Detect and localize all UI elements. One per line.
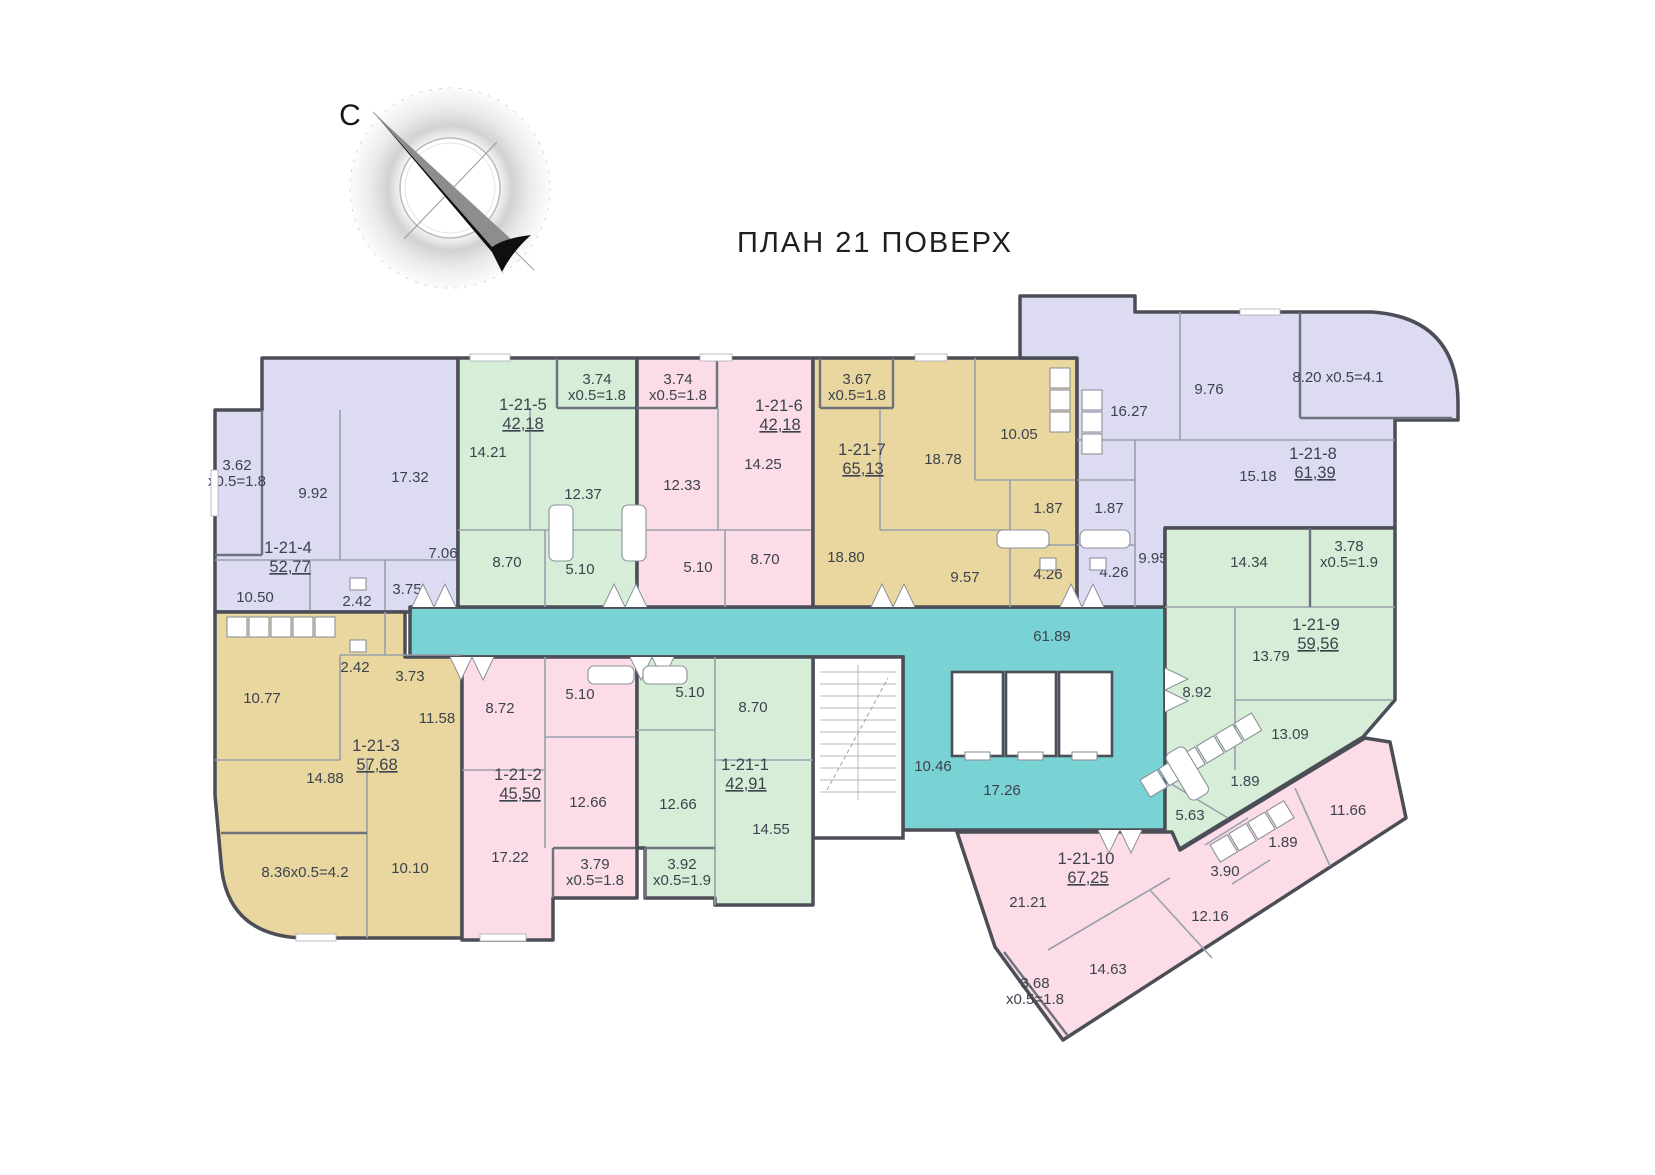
room-area-label: 9.92 <box>298 485 327 502</box>
room-area-label: 13.79 <box>1252 648 1290 665</box>
room-area-label: 9.76 <box>1194 381 1223 398</box>
room-area-label: 3.92 <box>667 856 696 873</box>
kitchen-counter-icon <box>1082 434 1102 454</box>
room-area-label: 9.95 <box>1138 550 1167 567</box>
room-area-label: 3.90 <box>1210 863 1239 880</box>
apartment-id: 1-21-9 <box>1292 616 1340 634</box>
room-area-label: 18.80 <box>827 549 865 566</box>
stove-icon <box>1082 412 1102 432</box>
room-area-label: 14.34 <box>1230 554 1268 571</box>
elevator-shaft-2 <box>1006 672 1056 756</box>
room-area-label: 14.63 <box>1089 961 1127 978</box>
compass-rose-icon: С <box>339 88 550 288</box>
room-area-label: x0.5=1.8 <box>1006 991 1064 1008</box>
window-icon <box>470 354 510 361</box>
room-area-label: 17.32 <box>391 469 429 486</box>
room-area-label: 8.70 <box>738 699 767 716</box>
stove-icon <box>1050 390 1070 410</box>
bathtub-icon <box>622 505 646 561</box>
apartment-id: 1-21-2 <box>494 766 542 784</box>
apartment-1-21-7: 3.67 x0.5=1.8 1-21-7 65,13 18.80 18.78 9… <box>813 358 1077 607</box>
apartment-id: 1-21-5 <box>499 396 547 414</box>
kitchen-counter-icon <box>293 617 313 637</box>
room-area-label: 8.20 x0.5=4.1 <box>1292 369 1383 386</box>
room-area-label: 14.55 <box>752 821 790 838</box>
apartment-1-21-1: 5.10 8.70 12.66 14.55 3.92 x0.5=1.9 1-21… <box>637 657 813 905</box>
room-area-label: 11.66 <box>1330 802 1366 819</box>
room-area-label: 12.16 <box>1191 908 1229 925</box>
room-area-label: 12.37 <box>564 486 602 503</box>
room-area-label: 14.21 <box>469 444 507 461</box>
room-area-label: 3.62 <box>222 457 251 474</box>
room-area-label: 15.18 <box>1239 468 1277 485</box>
floor-plan-page: С ПЛАН 21 ПОВЕРХ 61.89 10.46 17.26 1-21-… <box>0 0 1655 1170</box>
window-icon <box>1240 309 1280 315</box>
kitchen-counter-icon <box>1050 412 1070 432</box>
kitchen-counter-icon <box>315 617 335 637</box>
room-area-label: 21.21 <box>1009 894 1047 911</box>
sink-icon <box>350 578 366 590</box>
stair-hall-area-label: 10.46 <box>914 758 952 775</box>
room-area-label: 5.63 <box>1175 807 1204 824</box>
elevator-hall-area-label: 17.26 <box>983 782 1021 799</box>
apartment-id: 1-21-6 <box>755 397 803 415</box>
room-area-label: 9.57 <box>950 569 979 586</box>
room-area-label: 3.79 <box>580 856 609 873</box>
window-icon <box>915 354 947 361</box>
corridor-area-label: 61.89 <box>1033 628 1071 645</box>
bathtub-icon <box>588 666 634 684</box>
room-area-label: 8.70 <box>492 554 521 571</box>
floor-plan-drawing: С ПЛАН 21 ПОВЕРХ 61.89 10.46 17.26 1-21-… <box>0 0 1655 1170</box>
apartment-id: 1-21-10 <box>1058 850 1115 868</box>
room-area-label: 2.42 <box>340 659 369 676</box>
window-icon <box>480 934 526 941</box>
room-area-label: 3.68 <box>1020 975 1049 992</box>
apartment-total: 59,56 <box>1297 635 1338 653</box>
room-area-label: 18.78 <box>924 451 962 468</box>
apartment-id: 1-21-3 <box>352 737 400 755</box>
room-area-label: 1.87 <box>1033 500 1062 517</box>
sink-icon <box>1090 558 1106 570</box>
apartment-1-21-5: 1-21-5 42,18 3.74 x0.5=1.8 14.21 12.37 8… <box>458 358 637 607</box>
elevator-shaft-1 <box>952 672 1003 756</box>
apartment-total: 42,18 <box>502 415 543 433</box>
kitchen-counter-icon <box>249 617 269 637</box>
room-area-label: 10.10 <box>391 860 429 877</box>
room-area-label: 1.87 <box>1094 500 1123 517</box>
page-title: ПЛАН 21 ПОВЕРХ <box>737 227 1013 259</box>
room-area-label: 12.66 <box>569 794 607 811</box>
room-area-label: 2.42 <box>342 593 371 610</box>
room-area-label: 5.10 <box>565 686 594 703</box>
room-area-label: 10.50 <box>236 589 274 606</box>
room-area-label: 12.66 <box>659 796 697 813</box>
stove-icon <box>271 617 291 637</box>
apartment-1-21-6: 3.74 x0.5=1.8 1-21-6 42,18 12.33 14.25 8… <box>637 358 813 607</box>
apartment-total: 45,50 <box>499 785 540 803</box>
room-area-label: 8.72 <box>485 700 514 717</box>
north-label: С <box>339 99 361 132</box>
room-area-label: 3.74 <box>582 371 611 388</box>
apartment-total: 67,25 <box>1067 869 1108 887</box>
apartment-id: 1-21-1 <box>721 756 769 774</box>
window-icon <box>296 934 336 941</box>
room-area-label: x0.5=1.9 <box>1320 554 1378 571</box>
elevator-door-1 <box>965 752 990 760</box>
bathtub-icon <box>997 530 1049 548</box>
room-area-label: x0.5=1.8 <box>566 872 624 889</box>
room-area-label: x0.5=1.8 <box>568 387 626 404</box>
room-area-label: 10.05 <box>1000 426 1038 443</box>
apartment-id: 1-21-4 <box>264 539 312 557</box>
kitchen-counter-icon <box>227 617 247 637</box>
apartment-total: 52,77 <box>269 558 310 576</box>
apartment-1-21-2: 8.72 5.10 1-21-2 45,50 12.66 17.22 3.79 … <box>462 657 637 940</box>
room-area-label: 8.70 <box>750 551 779 568</box>
sink-icon <box>1040 558 1056 570</box>
apartment-total: 42,18 <box>759 416 800 434</box>
room-area-label: 3.78 <box>1334 538 1363 555</box>
room-area-label: 10.77 <box>243 690 281 707</box>
room-area-label: 1.89 <box>1230 773 1259 790</box>
room-area-label: 7.06 <box>428 545 457 562</box>
kitchen-counter-icon <box>1050 368 1070 388</box>
room-area-label: 14.25 <box>744 456 782 473</box>
window-icon <box>700 354 732 361</box>
room-area-label: x0.5=1.8 <box>828 387 886 404</box>
sink-icon <box>350 640 366 652</box>
apartment-1-21-3: 10.77 2.42 3.73 11.58 1-21-3 57,68 14.88… <box>215 612 462 938</box>
room-area-label: 5.10 <box>683 559 712 576</box>
room-area-label: 17.22 <box>491 849 529 866</box>
room-area-label: x0.5=1.8 <box>649 387 707 404</box>
apartment-total: 65,13 <box>842 460 883 478</box>
stairwell <box>813 657 903 838</box>
room-area-label: 1.89 <box>1268 834 1297 851</box>
room-area-label: 14.88 <box>306 770 344 787</box>
elevator-door-3 <box>1072 752 1097 760</box>
room-area-label: 8.92 <box>1182 684 1211 701</box>
room-area-label: 3.67 <box>842 371 871 388</box>
elevator-door-2 <box>1018 752 1043 760</box>
apartment-id: 1-21-8 <box>1289 445 1337 463</box>
elevator-shaft-3 <box>1059 672 1112 756</box>
room-area-label: x0.5=1.9 <box>653 872 711 889</box>
room-area-label: 3.74 <box>663 371 692 388</box>
room-area-label: 12.33 <box>663 477 701 494</box>
kitchen-counter-icon <box>1082 390 1102 410</box>
room-area-label: 11.58 <box>419 710 455 727</box>
room-area-label: 5.10 <box>565 561 594 578</box>
apartment-total: 57,68 <box>356 756 397 774</box>
bathtub-icon <box>549 505 573 561</box>
apartment-total: 42,91 <box>725 775 766 793</box>
apartment-1-21-4: 1-21-4 52,77 3.62 x0.5=1.8 9.92 17.32 7.… <box>208 358 458 612</box>
apartment-total: 61,39 <box>1294 464 1335 482</box>
room-area-label: 16.27 <box>1110 403 1148 420</box>
bathtub-icon <box>1080 530 1130 548</box>
room-area-label: 5.10 <box>675 684 704 701</box>
apartment-id: 1-21-7 <box>838 441 886 459</box>
bathtub-icon <box>643 666 687 684</box>
room-area-label: 8.36x0.5=4.2 <box>261 864 348 881</box>
room-area-label: 3.73 <box>395 668 424 685</box>
room-area-label: 13.09 <box>1271 726 1309 743</box>
window-icon <box>211 470 218 516</box>
